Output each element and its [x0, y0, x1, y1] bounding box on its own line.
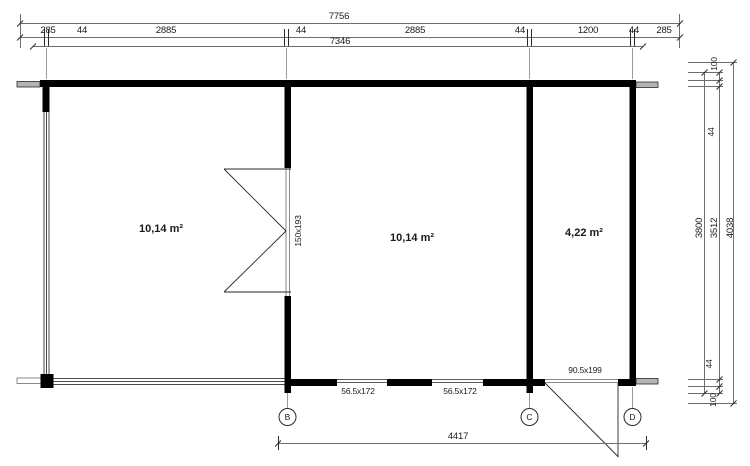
double-door-size-label: 150x193: [293, 215, 303, 247]
axis-label-d: D: [629, 412, 635, 422]
dim-top-overall: 7756: [329, 11, 349, 22]
building-walls: [17, 80, 658, 393]
dim-right-outer-height: 3800: [694, 218, 705, 238]
dim-top-inner: 7346: [330, 36, 350, 47]
top-extension-lines: [47, 48, 633, 79]
dim-top-seg-44c: 44: [515, 25, 525, 36]
dim-right-wall-bottom: 44: [704, 359, 714, 369]
wall-axis-d: [630, 80, 637, 386]
dim-right-overhang-top: 100: [709, 57, 719, 71]
dim-top-seg-1200: 1200: [578, 25, 598, 36]
dim-top-seg-2885b: 2885: [405, 25, 425, 36]
top-dimension-labels: 7756 285 44 2885 44 2885 44 1200 44 285 …: [40, 11, 671, 47]
double-door-leaf: [286, 168, 290, 296]
log-end-top-left: [17, 82, 40, 88]
room-area-terrace: 10,14 m²: [139, 223, 183, 235]
log-end-top-right: [636, 82, 658, 88]
entry-door-size-label: 90.5x199: [568, 365, 602, 375]
window-left-size-label: 56.5x172: [341, 386, 375, 396]
double-door: 150x193: [224, 168, 303, 296]
log-end-bottom-left: [17, 378, 41, 384]
axis-label-b: B: [285, 412, 291, 422]
dim-right-wall-top: 44: [706, 127, 716, 137]
dim-top-seg-44b: 44: [296, 25, 306, 36]
dim-top-seg-285l: 285: [40, 25, 55, 36]
double-door-swing: [224, 169, 291, 292]
dim-right-overhang-bottom: 100: [708, 393, 718, 407]
floor-plan-drawing: 7756 285 44 2885 44 2885 44 1200 44 285 …: [0, 0, 750, 466]
post-top-left: [43, 80, 50, 112]
log-end-bottom-right: [636, 379, 658, 385]
dim-top-seg-285r: 285: [656, 25, 671, 36]
dim-right-overall-height: 4038: [725, 218, 736, 238]
entry-door-leaf: [545, 380, 618, 383]
dim-top-seg-44a: 44: [77, 25, 87, 36]
axis-label-c: C: [526, 412, 532, 422]
dim-right-interior-height: 3512: [709, 218, 720, 238]
post-bottom-left: [41, 374, 54, 388]
wall-axis-c: [527, 80, 534, 393]
room-area-main: 10,14 m²: [390, 232, 434, 244]
dim-top-seg-2885a: 2885: [156, 25, 176, 36]
window-right-size-label: 56.5x172: [443, 386, 477, 396]
log-end-stubs: [17, 82, 658, 385]
dim-top-seg-44d: 44: [629, 25, 639, 36]
dim-bottom-span: 4417: [448, 431, 468, 442]
entry-door-swing: [545, 383, 619, 457]
right-dimension-labels: 100 44 3800 3512 4038 44 100: [694, 57, 736, 407]
wall-axis-b: [285, 80, 292, 393]
terrace-open-sides: [44, 87, 285, 385]
room-area-small: 4,22 m²: [565, 227, 603, 239]
bottom-dimension: 4417: [275, 431, 649, 450]
right-dimension-chain: 100 44 3800 3512 4038 44 100: [688, 57, 737, 407]
floor-plan-page: 7756 285 44 2885 44 2885 44 1200 44 285 …: [0, 0, 750, 466]
wall-top: [40, 80, 636, 87]
